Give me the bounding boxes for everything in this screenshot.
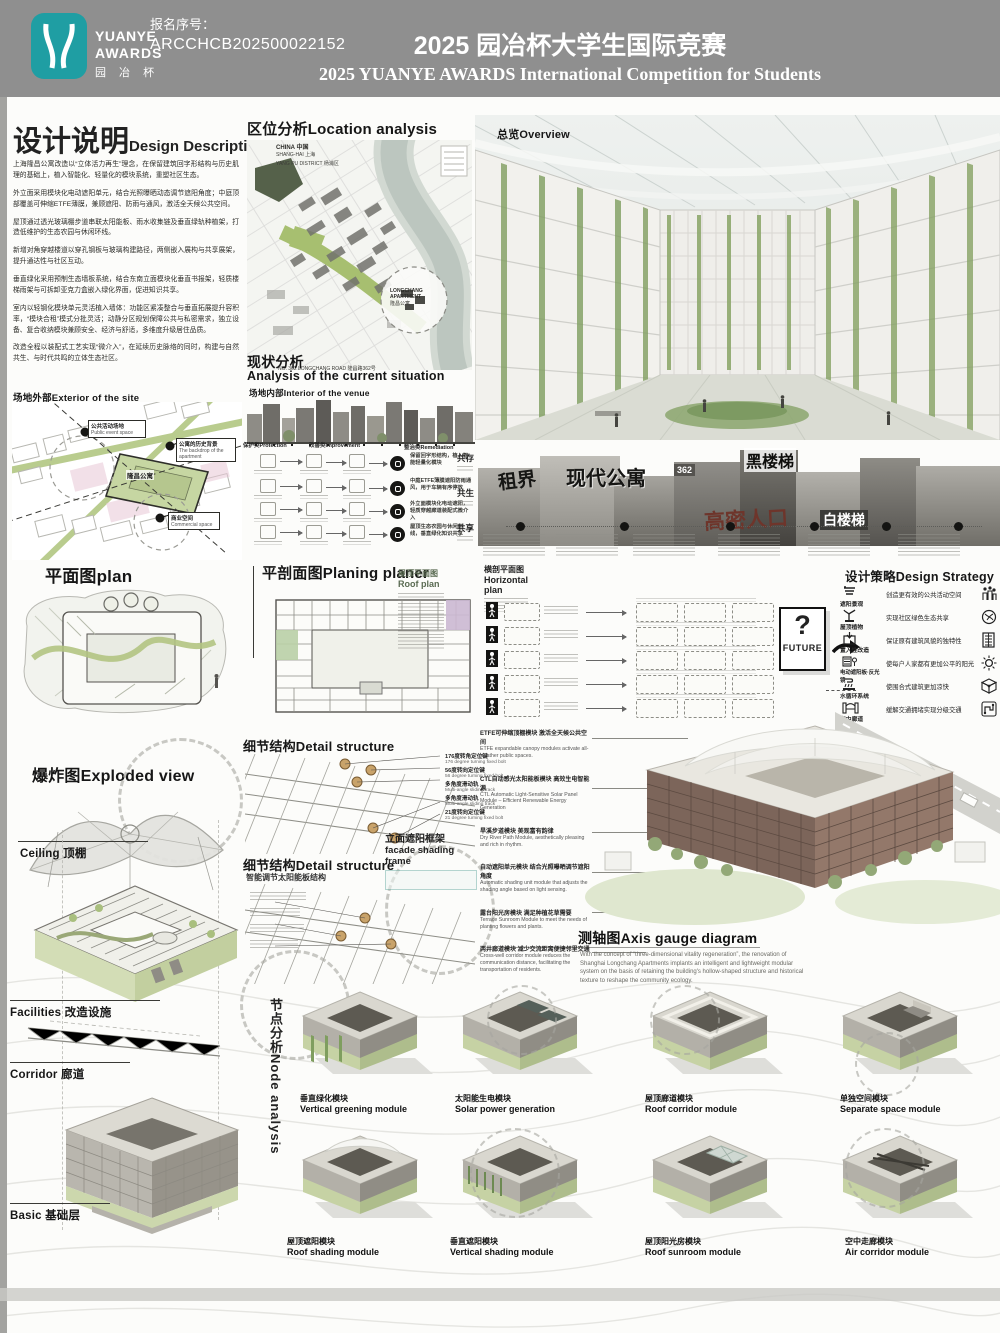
module-label-en: Roof sunroom module — [645, 1247, 741, 1257]
fine-print — [250, 892, 306, 900]
person-icon — [486, 674, 498, 691]
solution-sketch — [684, 627, 726, 646]
fine-print — [254, 470, 282, 474]
flow-arrow-icon — [280, 486, 302, 487]
history-sign-362: 362 — [674, 464, 695, 476]
person-icon — [486, 698, 498, 715]
axis-title-underline — [500, 947, 760, 948]
history-paragraph — [556, 534, 618, 558]
timeline-dot — [516, 522, 525, 531]
future-box: ? FUTURE — [779, 607, 826, 671]
design-paragraph: 新增对角穿越楼道以穿孔钢板与玻璃构建路径，两侧嵌入展构与共享展架，提升通达性与社… — [13, 246, 239, 268]
location-map — [247, 140, 472, 370]
history-label-concession: 租界 — [496, 464, 537, 495]
module-label-en: Roof shading module — [287, 1247, 379, 1257]
module-label: 屋顶廊道模块 Roof corridor module — [645, 1093, 737, 1114]
flow-arrow-icon — [326, 487, 346, 488]
louver-mirror-icon — [842, 655, 857, 668]
timeline-dot — [810, 522, 819, 531]
solution-sketch — [732, 603, 774, 622]
history-paragraph — [483, 534, 545, 558]
module-label-en: Separate space module — [840, 1104, 941, 1114]
anno-en: Cross-well corridor module reduces the c… — [480, 953, 592, 973]
frame-label-cn: 立面遮阳框架 — [385, 830, 480, 845]
flow-arrow-icon — [586, 684, 626, 685]
left-edge-strip — [0, 97, 7, 1333]
strategy-row: 屋顶植物 实现社区绿色生态共享 — [840, 609, 1000, 632]
corridor-leader-line — [10, 1062, 130, 1063]
bottom-strip — [0, 1288, 1000, 1301]
competition-title-cn: 2025 园冶杯大学生国际竞赛 — [330, 26, 810, 62]
strategy-desc: 使每户人家都有更加公平的阳光 — [886, 659, 978, 668]
decor-dashed-circle — [470, 1128, 560, 1218]
fine-print — [300, 518, 328, 522]
design-paragraph: 屋顶通过透光玻璃棚步道串联太阳能板、雨水收集链及垂直绿轨种植架，打造低维护的生态… — [13, 218, 239, 240]
hp-row — [486, 602, 778, 624]
commons-column: 共存 共生 共享 — [457, 452, 477, 543]
header-bar: YUANYE AWARDS 园 冶 杯 报名序号： ARCCHCB2025000… — [0, 0, 1000, 97]
overview-label: 总览Overview — [497, 126, 570, 142]
design-paragraph: 外立面采用模块化电动遮阳单元，结合光照曝晒动态调节遮阳角度；中庭顶部覆盖可伸缩E… — [13, 189, 239, 211]
strategy-row: 置入性改造 保证原有建筑风貌的独特性 — [840, 632, 1000, 655]
action-icon — [306, 479, 322, 493]
history-paragraph — [633, 534, 695, 558]
decor-dashed-circle — [487, 985, 557, 1055]
fine-print — [398, 593, 444, 649]
axis-diagram-title: 测轴图Axis gauge diagram — [578, 928, 757, 948]
anno-cn: 两井廊道模块 减少交流距离便捷邻里交通 — [480, 944, 592, 953]
situation-flow-diagram: 保留回字形结构，植入智能轻量化模块 中庭ETFE薄膜遮阳防雨通风，用于车辆有序停… — [250, 452, 475, 548]
flow-arrow-icon — [586, 636, 626, 637]
flow-arrow-icon — [369, 511, 387, 512]
person-icon — [486, 626, 498, 643]
exploded-basic-building-drawing — [52, 1082, 252, 1237]
flow-arrow-icon — [280, 461, 302, 462]
flow-arrow-icon — [369, 534, 387, 535]
fine-print — [250, 924, 304, 932]
module-card-roof-shading — [285, 1122, 435, 1230]
strategy-desc: 使围合式建筑更加凉快 — [886, 682, 978, 691]
design-paragraph: 室内以轻钢化模块单元灵活植入墙体：功能区紧凑整合与垂直拓展提升容积率，“模块合租… — [13, 304, 239, 337]
plans-divider-line — [253, 566, 254, 658]
timeline-line — [506, 526, 982, 527]
sun-icon — [981, 655, 997, 671]
module-label-en: Vertical shading module — [450, 1247, 554, 1257]
strategy-label: 遮阳景观 — [840, 599, 882, 608]
overview-rendering — [475, 115, 1000, 440]
map-label-city: SHANG-HAI 上海 — [276, 151, 315, 158]
flow-row: 屋顶生态农园与休闲环线，垂直绿化知识共享 — [250, 523, 475, 545]
anno-en: Automatic shading unit module that adjus… — [480, 880, 592, 894]
design-paragraph: 垂直绿化采用预制生态墙板系统，结合东南立面模块化垂直书报架，轻质楼梯雨架与可拆卸… — [13, 275, 239, 297]
module-label: 单独空间模块 Separate space module — [840, 1093, 941, 1114]
callout-en: The backdrop of the apartment — [179, 448, 233, 460]
fine-print — [544, 630, 578, 640]
fine-print — [544, 678, 578, 688]
ceiling-leader-line — [18, 841, 148, 842]
callout-cn: 公寓的历史背景 — [179, 440, 233, 448]
flow-arrow-icon — [586, 612, 626, 613]
solution-sketch — [732, 651, 774, 670]
anno-cn: 露台阳光房模块 满足种植花草需要 — [480, 908, 592, 917]
decor-dashed-circle — [650, 985, 720, 1055]
cool-block-icon — [981, 678, 997, 694]
horizontal-plan-flow — [486, 598, 778, 720]
history-label-high-density: 高密人口 — [703, 502, 788, 536]
solution-sketch — [684, 675, 726, 694]
strategy-row: 水循环系统 使围合式建筑更加凉快 — [840, 678, 1000, 701]
module-label: 垂直遮阳模块 Vertical shading module — [450, 1236, 554, 1257]
strategy-row: 电动遮阳板·反光镜 使每户人家都有更加公平的阳光 — [840, 655, 1000, 678]
registration-number: ARCCHCB202500022152 — [150, 36, 345, 54]
module-label-en: Vertical greening module — [300, 1104, 407, 1114]
fine-print — [544, 606, 578, 616]
common-sharing: 共享 — [457, 522, 477, 534]
solution-sketch — [636, 603, 678, 622]
anno-en: Terrace Sunroom Module to meet the needs… — [480, 917, 592, 931]
module-card-roof-sunroom — [635, 1122, 785, 1230]
flow-arrow-icon — [280, 509, 302, 510]
result-badge-icon — [390, 481, 405, 496]
problem-icon — [260, 454, 276, 468]
anno-cn: CTL自动感光太阳能板模块 高效生电智能源 — [480, 774, 592, 792]
fine-print — [544, 654, 578, 664]
solution-sketch — [636, 627, 678, 646]
module-label: 空中走廊模块 Air corridor module — [845, 1236, 929, 1257]
map-label-apartment: LONGCHANG APARTMENT 隆昌公寓 — [390, 288, 444, 307]
module-label-en: Solar power generation — [455, 1104, 555, 1114]
module-label-cn: 屋顶遮阳模块 — [287, 1236, 379, 1247]
fine-print — [457, 536, 473, 543]
strategy-row: 遮阳景观 创造更有效的公共活动空间 — [840, 586, 1000, 609]
problem-sketch — [504, 627, 540, 645]
solution-sketch — [636, 675, 678, 694]
site-callout-backdrop: 公寓的历史背景 The backdrop of the apartment — [176, 438, 236, 462]
strategy-desc: 实现社区绿色生态共享 — [886, 613, 978, 622]
strategy-label: 置入性改造 — [840, 645, 882, 654]
corridor-label: Corridor 廊道 — [10, 1066, 84, 1082]
insert-renovation-icon — [842, 632, 857, 645]
facade-shading-frame-label: 立面遮阳框架 facade shading frame — [385, 830, 480, 890]
issue-icon — [349, 479, 365, 493]
design-title-en: Design Description — [129, 138, 266, 155]
building-icon — [981, 632, 996, 648]
category-remediation: 整治类Remediation — [404, 443, 454, 451]
fine-print — [300, 541, 328, 545]
solution-sketch — [684, 603, 726, 622]
person-icon — [486, 602, 498, 619]
person-icon — [486, 650, 498, 667]
ceiling-label: Ceiling 顶棚 — [20, 845, 87, 861]
callout-en: Commercial space — [171, 522, 217, 528]
apartment-cn: 隆昌公寓 — [390, 300, 444, 307]
action-icon — [306, 454, 322, 468]
logo-text-yuanye: YUANYE — [95, 28, 156, 44]
result-badge-icon — [390, 527, 405, 542]
solution-sketch — [732, 627, 774, 646]
detail2-callout-labels — [250, 892, 310, 948]
solution-sketch — [684, 651, 726, 670]
situation-title: 现状分析 Analysis of the current situation — [247, 355, 445, 383]
problem-sketch — [504, 651, 540, 669]
fine-print — [457, 501, 473, 508]
basic-leader-line — [10, 1203, 110, 1204]
callout-cn: 公共活动场地 — [91, 422, 143, 430]
problem-icon — [260, 525, 276, 539]
history-paragraph — [718, 534, 780, 558]
category-protection: 保护类Protection — [243, 441, 287, 449]
result-badge-icon — [390, 456, 405, 471]
registration-label: 报名序号： — [150, 14, 215, 33]
apartment-en: LONGCHANG APARTMENT — [390, 288, 444, 300]
module-label-cn: 空中走廊模块 — [845, 1236, 929, 1247]
shade-landscape-icon — [842, 586, 857, 599]
detail-structure-title-1: 细节结构Detail structure — [243, 736, 394, 755]
flow-arrow-icon — [326, 533, 346, 534]
anno-block: 露台阳光房模块 满足种植花草需要 Terrace Sunroom Module … — [480, 908, 592, 931]
anno-en: Dry River Path Module, aesthetically ple… — [480, 835, 592, 849]
problem-icon — [260, 502, 276, 516]
fine-print — [254, 518, 282, 522]
crowd-icon — [981, 586, 998, 601]
module-card-vertical-greening — [285, 978, 435, 1086]
anno-cn: 自动遮阳单元模块 结合光照曝晒调节遮阳角度 — [480, 862, 592, 880]
future-question-mark: ? — [781, 609, 824, 643]
yuanye-logo-icon — [30, 12, 88, 80]
anno-cn: 旱溪步道模块 美观富有韵律 — [480, 826, 592, 835]
fine-print — [343, 541, 371, 545]
roof-plan-note-en: Roof plan — [398, 579, 448, 589]
horizontal-plan-en: Horizontal plan — [484, 575, 536, 595]
anno-block: 两井廊道模块 减少交流距离便捷邻里交通 Cross-well corridor … — [480, 944, 592, 973]
roof-plan-note: 屋顶平面图 Roof plan — [398, 568, 448, 649]
strategy-desc: 保证原有建筑风貌的独特性 — [886, 636, 978, 645]
fine-print — [250, 908, 300, 916]
problem-sketch — [504, 699, 540, 717]
interior-panorama — [247, 398, 475, 446]
situation-title-cn: 现状分析 — [247, 355, 445, 370]
axon-annotations: ETFE可伸缩顶棚模块 激活全天候公共空间 ETFE expandable ca… — [480, 728, 592, 974]
solution-sketch — [732, 675, 774, 694]
flow-arrow-icon — [586, 708, 626, 709]
roof-plan-drawing — [15, 586, 235, 720]
design-description-title: 设计说明Design Description — [13, 118, 266, 160]
anno-block: CTL自动感光太阳能板模块 高效生电智能源 CTL Automatic Ligh… — [480, 774, 592, 812]
design-paragraph: 上海隆昌公寓改造以“立体活力再生”理念，在保留建筑回字形结构与历史肌理的基础上，… — [13, 160, 239, 182]
design-strategy-list: 遮阳景观 创造更有效的公共活动空间 屋顶植物 实现社区绿色生态共享 置入性改造 … — [840, 586, 1000, 724]
history-label-white-staircase: 白楼梯 — [820, 510, 868, 530]
frame-label-en: facade shading frame — [385, 845, 480, 867]
issue-icon — [349, 454, 365, 468]
site-callout-public-space: 公共活动场地 Public event space — [88, 420, 146, 438]
exploded-corridor-truss-drawing — [20, 1016, 230, 1062]
timeline-dot — [882, 522, 891, 531]
module-label: 屋顶遮阳模块 Roof shading module — [287, 1236, 379, 1257]
location-analysis-title: 区位分析Location analysis — [247, 118, 437, 139]
globe-leaf-icon — [981, 609, 997, 625]
result-badge-icon — [390, 504, 405, 519]
fine-print — [343, 518, 371, 522]
flow-row: 外立面模块化电动遮阳，轻质穿越廊道装配式微介入 — [250, 500, 475, 522]
map-label-district: YANG PU DISTRICT 杨浦区 — [276, 160, 339, 167]
decor-dashed-circle — [845, 1128, 925, 1208]
problem-icon — [260, 479, 276, 493]
axonometric-rendering — [585, 712, 1000, 930]
module-label-cn: 太阳能生电模块 — [455, 1093, 555, 1104]
fine-print — [300, 470, 328, 474]
common-coexist: 共存 — [457, 452, 477, 464]
flow-arrow-icon — [369, 463, 387, 464]
site-callout-commercial: 商业空间 Commercial space — [168, 512, 220, 530]
action-icon — [306, 502, 322, 516]
module-label-en: Air corridor module — [845, 1247, 929, 1257]
timeline-dot — [726, 522, 735, 531]
anno-en: CTL Automatic Light-Sensitive Solar Pane… — [480, 792, 592, 812]
site-building-label: 隆昌公寓 — [126, 470, 154, 480]
problem-sketch — [504, 603, 540, 621]
solution-sketch — [636, 651, 678, 670]
competition-title-en: 2025 YUANYE AWARDS International Competi… — [260, 64, 880, 85]
water-cycle-icon — [842, 678, 857, 691]
strategy-label: 水循环系统 — [840, 691, 882, 700]
anno-cn: ETFE可伸缩顶棚模块 激活全天候公共空间 — [480, 728, 592, 746]
horizontal-plan-cn: 横剖平面图 — [484, 564, 536, 575]
anno-en: ETFE expandable canopy modules activate … — [480, 746, 592, 760]
module-label: 太阳能生电模块 Solar power generation — [455, 1093, 555, 1114]
fine-print — [544, 702, 578, 712]
common-symbiosis: 共生 — [457, 487, 477, 499]
node-analysis-vertical-title: 节点分析Node analysis — [266, 998, 285, 1154]
timeline-dot — [954, 522, 963, 531]
anno-block: 自动遮阳单元模块 结合光照曝晒调节遮阳角度 Automatic shading … — [480, 862, 592, 894]
callout-cn: 商业空间 — [171, 514, 217, 522]
timeline-dot — [620, 522, 629, 531]
strategy-label: 屋顶植物 — [840, 622, 882, 631]
history-label-modern-apartment: 现代公寓 — [566, 462, 646, 491]
design-paragraph: 改造全程以装配式工艺实现“微介入”，在延续历史脉络的同时，构建与自然共生、与时代… — [13, 343, 239, 365]
logo-text-cn: 园 冶 杯 — [95, 64, 159, 80]
anno-block: 旱溪步道模块 美观富有韵律 Dry River Path Module, aes… — [480, 826, 592, 849]
map-label-country: CHINA 中国 — [276, 142, 308, 151]
history-label-black-staircase: 黑楼梯 — [744, 448, 796, 472]
module-label-cn: 单独空间模块 — [840, 1093, 941, 1104]
design-title-cn: 设计说明 — [13, 126, 129, 158]
flow-arrow-icon — [326, 510, 346, 511]
module-label-cn: 垂直遮阳模块 — [450, 1236, 554, 1247]
hp-row — [486, 650, 778, 672]
flow-row: 中庭ETFE薄膜遮阳防雨通风，用于车辆有序停放 — [250, 477, 475, 499]
issue-icon — [349, 502, 365, 516]
flow-arrow-icon — [280, 532, 302, 533]
facilities-leader-line — [10, 1000, 160, 1001]
fine-print — [254, 495, 282, 499]
history-photo — [860, 458, 920, 546]
callout-en: Public event space — [91, 430, 143, 436]
fine-print — [254, 541, 282, 545]
flow-arrow-icon — [586, 660, 626, 661]
anno-block: ETFE可伸缩顶棚模块 激活全天候公共空间 ETFE expandable ca… — [480, 728, 592, 760]
roof-plan-note-cn: 屋顶平面图 — [398, 568, 448, 579]
basic-label: Basic 基础层 — [10, 1207, 80, 1223]
fine-print — [250, 940, 298, 948]
history-paragraph — [808, 534, 870, 558]
decor-dashed-circle — [855, 1032, 919, 1096]
strategy-desc: 创造更有效的公共活动空间 — [886, 590, 978, 599]
module-label-cn: 屋顶阳光房模块 — [645, 1236, 741, 1247]
history-collage-band: 租界 现代公寓 362 黑楼梯 高密人口 白楼梯 — [478, 440, 1000, 560]
plan-title: 平面图plan — [45, 562, 132, 587]
history-paragraph — [898, 534, 960, 558]
future-label: FUTURE — [781, 643, 824, 653]
module-label-cn: 屋顶廊道模块 — [645, 1093, 737, 1104]
flow-row: 保留回字形结构，植入智能轻量化模块 — [250, 452, 475, 474]
module-label-cn: 垂直绿化模块 — [300, 1093, 407, 1104]
fine-print — [300, 495, 328, 499]
action-icon — [306, 525, 322, 539]
design-description-body: 上海隆昌公寓改造以“立体活力再生”理念，在保留建筑回字形结构与历史肌理的基础上，… — [13, 160, 239, 365]
issue-icon — [349, 525, 365, 539]
flow-arrow-icon — [326, 462, 346, 463]
module-label-en: Roof corridor module — [645, 1104, 737, 1114]
fine-print — [343, 495, 371, 499]
hp-row — [486, 626, 778, 648]
smart-solar-subtitle: 智能调节太阳能板结构 — [246, 872, 326, 883]
design-strategy-title: 设计策略Design Strategy — [845, 566, 994, 585]
situation-title-en: Analysis of the current situation — [247, 370, 445, 383]
category-improvement: 改善类Improvement — [309, 441, 360, 449]
fine-print — [457, 466, 473, 473]
module-label: 垂直绿化模块 Vertical greening module — [300, 1093, 407, 1114]
hp-row — [486, 674, 778, 696]
flow-arrow-icon — [369, 488, 387, 489]
roof-plant-icon — [842, 609, 857, 622]
module-label: 屋顶阳光房模块 Roof sunroom module — [645, 1236, 741, 1257]
problem-sketch — [504, 675, 540, 693]
fine-print — [343, 470, 371, 474]
